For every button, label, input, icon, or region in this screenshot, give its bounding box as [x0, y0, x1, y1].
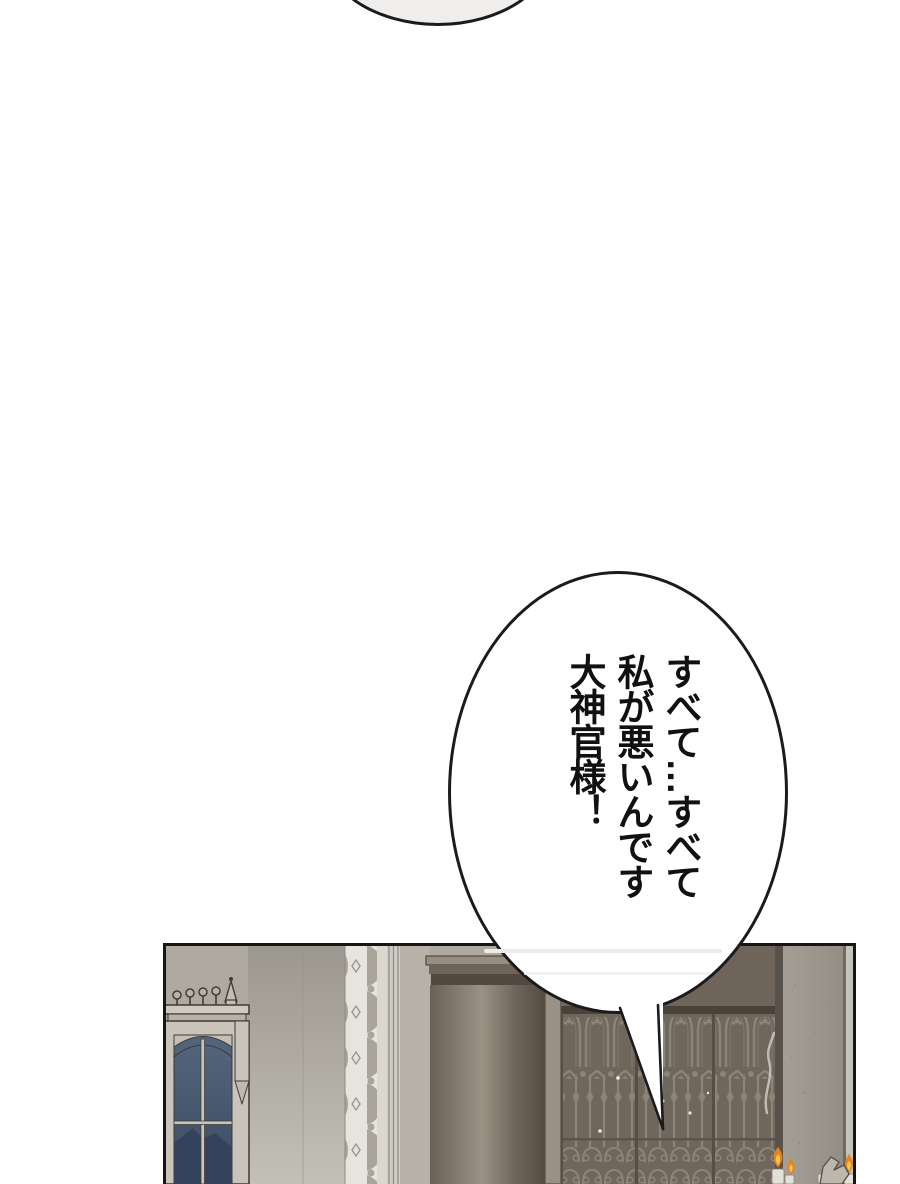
trim-flat: [377, 943, 387, 1184]
stone-column-groove: [843, 943, 846, 1184]
gate-scrolls-top: [561, 1140, 775, 1162]
bubble-shading-streak: [484, 949, 722, 953]
gothic-window: [165, 977, 249, 1184]
gate-divider: [712, 1014, 715, 1184]
dialogue-line: 大神官様！: [560, 653, 608, 915]
panel-artwork: [163, 943, 856, 1184]
stone-column-face: [783, 943, 845, 1184]
dialogue-line: 私が悪いんです: [608, 653, 656, 915]
dark-pillar-body: [430, 985, 545, 1184]
previous-speech-bubble-remnant: [321, 0, 555, 26]
window-pilaster: [235, 1021, 249, 1081]
window-cornice: [165, 1005, 249, 1014]
candle: [785, 1175, 794, 1184]
dialogue-line: すべて…すべて: [656, 653, 704, 915]
speech-bubble-tail: [605, 985, 675, 1135]
stone-column-highlight: [846, 943, 853, 1184]
gate-scrolls-bottom: [561, 1162, 775, 1184]
cresting-ball: [173, 991, 181, 999]
wall-trim: [345, 943, 400, 1184]
window-mullion-horizontal: [174, 1121, 232, 1125]
speech-bubble-text: すべて…すべて 私が悪いんです 大神官様！: [558, 653, 704, 915]
candle: [772, 1169, 784, 1184]
wall-right-of-trim: [400, 943, 430, 1184]
door-frame-strip: [545, 969, 561, 1184]
cresting-ball: [186, 989, 194, 997]
wall-left: [248, 943, 345, 1184]
cresting-ball: [199, 988, 207, 996]
manga-page: すべて…すべて 私が悪いんです 大神官様！: [0, 0, 900, 1184]
bubble-shading-streak: [524, 972, 710, 975]
window-mullion-vertical: [201, 1039, 205, 1184]
trim-scallops: [345, 943, 377, 1184]
cresting-ball: [212, 987, 220, 995]
stone-column-edge: [775, 943, 783, 1184]
stone-column: [775, 943, 853, 1184]
dark-pillar: [426, 956, 549, 1184]
